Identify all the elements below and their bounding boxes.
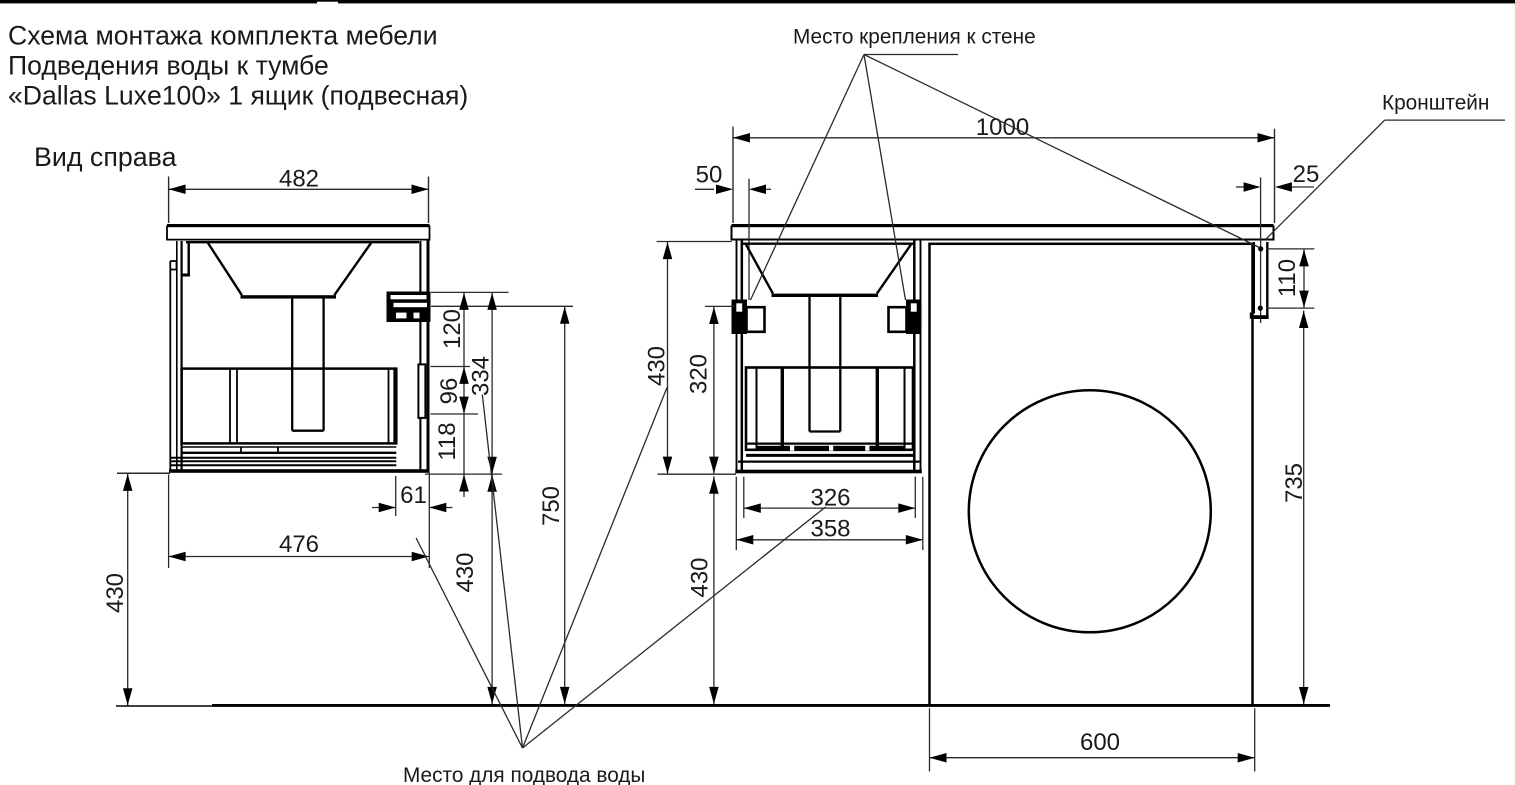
- svg-text:482: 482: [279, 166, 319, 193]
- svg-text:430: 430: [102, 573, 129, 613]
- svg-text:«Dallas Luxe100» 1 ящик (подве: «Dallas Luxe100» 1 ящик (подвесная): [8, 81, 468, 111]
- svg-text:61: 61: [400, 482, 427, 509]
- svg-text:Подведения воды к тумбе: Подведения воды к тумбе: [8, 51, 329, 81]
- svg-text:430: 430: [644, 346, 671, 386]
- svg-text:50: 50: [696, 162, 723, 189]
- svg-text:25: 25: [1293, 161, 1320, 188]
- svg-text:Место для подвода воды: Место для подвода воды: [403, 764, 645, 785]
- svg-text:750: 750: [538, 486, 565, 526]
- svg-text:96: 96: [436, 378, 463, 405]
- svg-text:1000: 1000: [976, 114, 1029, 141]
- svg-text:118: 118: [434, 422, 461, 460]
- svg-text:Вид справа: Вид справа: [34, 142, 177, 172]
- svg-text:735: 735: [1281, 463, 1308, 503]
- svg-text:Место крепления к стене: Место крепления к стене: [793, 26, 1036, 49]
- svg-text:326: 326: [810, 485, 850, 512]
- svg-text:320: 320: [686, 354, 713, 394]
- svg-text:120: 120: [439, 309, 466, 349]
- svg-text:110: 110: [1274, 259, 1301, 297]
- svg-text:Кронштейн: Кронштейн: [1382, 92, 1489, 115]
- svg-text:430: 430: [687, 557, 714, 597]
- svg-text:334: 334: [468, 356, 495, 396]
- svg-text:Схема монтажа комплекта мебели: Схема монтажа комплекта мебели: [8, 21, 438, 51]
- svg-text:430: 430: [452, 552, 479, 592]
- svg-text:358: 358: [810, 516, 850, 543]
- svg-text:476: 476: [279, 531, 319, 558]
- svg-text:600: 600: [1080, 729, 1120, 756]
